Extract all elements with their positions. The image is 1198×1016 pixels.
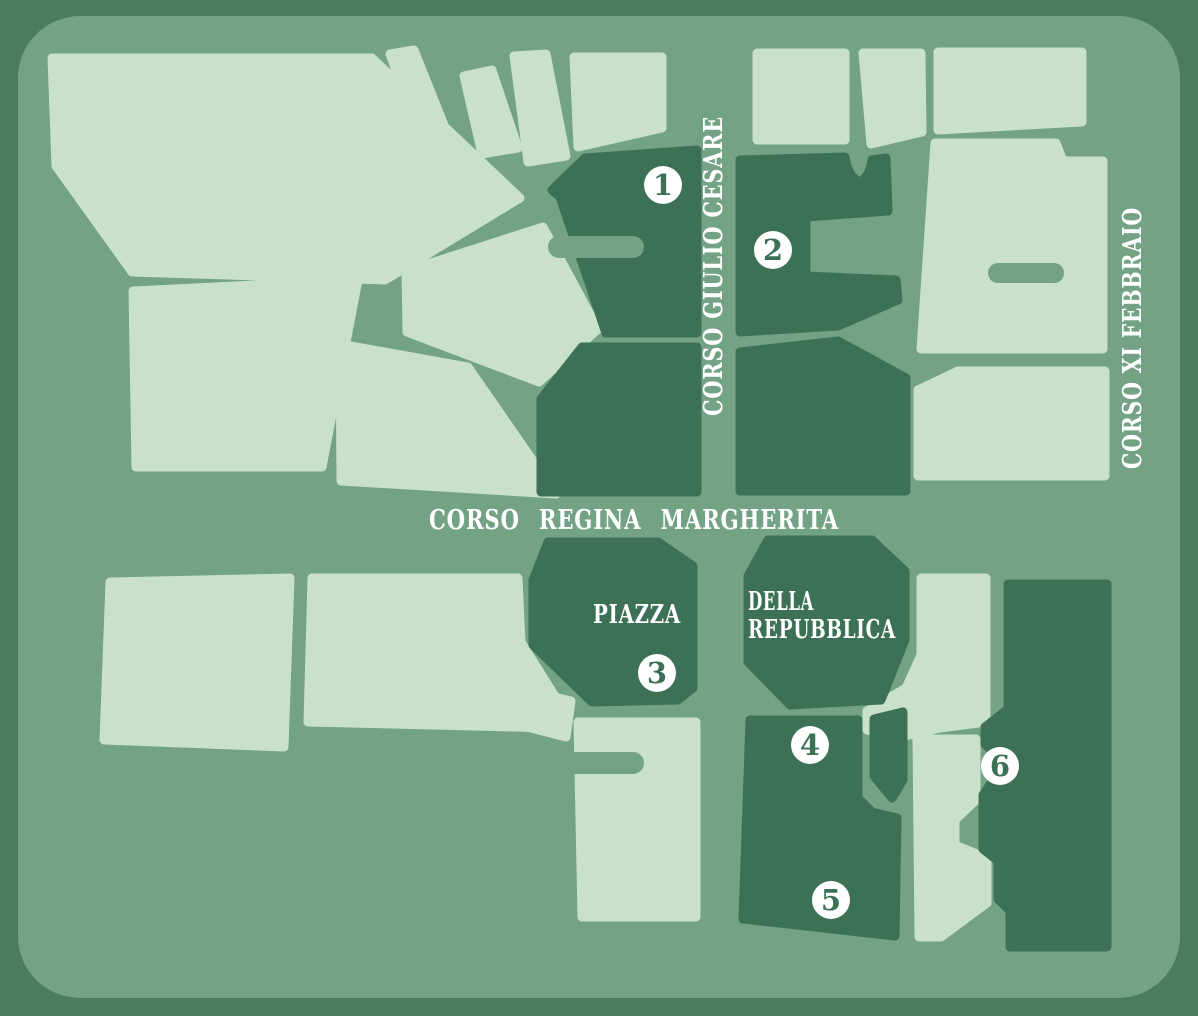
marker-1-number: 1 bbox=[653, 168, 673, 202]
marker-6[interactable]: 6 bbox=[981, 747, 1019, 785]
block-top-center bbox=[574, 57, 662, 147]
marker-1[interactable]: 1 bbox=[644, 166, 682, 204]
label-corso-regina-margherita: CORSO REGINA MARGHERITA bbox=[429, 505, 839, 536]
street-stub-east bbox=[988, 263, 1064, 283]
block-south-column bbox=[578, 722, 696, 917]
marker-3[interactable]: 3 bbox=[638, 654, 676, 692]
marker-6-number: 6 bbox=[990, 749, 1010, 783]
block-top-right-1 bbox=[757, 53, 845, 140]
map-illustration: CORSO GIULIO CESARE CORSO XI FEBBRAIO CO… bbox=[0, 0, 1198, 1016]
street-stub-south bbox=[564, 752, 644, 774]
marker-5-number: 5 bbox=[821, 883, 841, 917]
marker-4[interactable]: 4 bbox=[791, 726, 829, 764]
block-sliver bbox=[874, 712, 903, 798]
label-della: DELLA bbox=[748, 587, 814, 617]
block-east-lower bbox=[918, 371, 1105, 476]
block-east-upper bbox=[921, 143, 1103, 349]
label-corso-xi-febbraio: CORSO XI FEBBRAIO bbox=[1118, 207, 1148, 469]
block-west-middle-1 bbox=[133, 280, 358, 467]
marker-4-number: 4 bbox=[800, 728, 820, 762]
city-map-svg: CORSO GIULIO CESARE CORSO XI FEBBRAIO CO… bbox=[0, 0, 1198, 1016]
marker-2[interactable]: 2 bbox=[754, 231, 792, 269]
block-top-right-2 bbox=[863, 53, 922, 144]
block-southwest-1 bbox=[104, 578, 290, 747]
marker-3-number: 3 bbox=[647, 656, 667, 690]
marker-5[interactable]: 5 bbox=[812, 881, 850, 919]
block-top-right-3 bbox=[938, 52, 1082, 130]
label-piazza: PIAZZA bbox=[593, 600, 681, 630]
block-corso-lower-east bbox=[740, 341, 906, 491]
label-repubblica: REPUBBLICA bbox=[748, 615, 896, 645]
street-stub-block1 bbox=[548, 236, 644, 258]
marker-2-number: 2 bbox=[763, 233, 783, 267]
block-southwest-wedge bbox=[511, 688, 571, 737]
label-corso-giulio-cesare: CORSO GIULIO CESARE bbox=[699, 116, 729, 416]
block-corso-lower-west bbox=[541, 347, 697, 492]
